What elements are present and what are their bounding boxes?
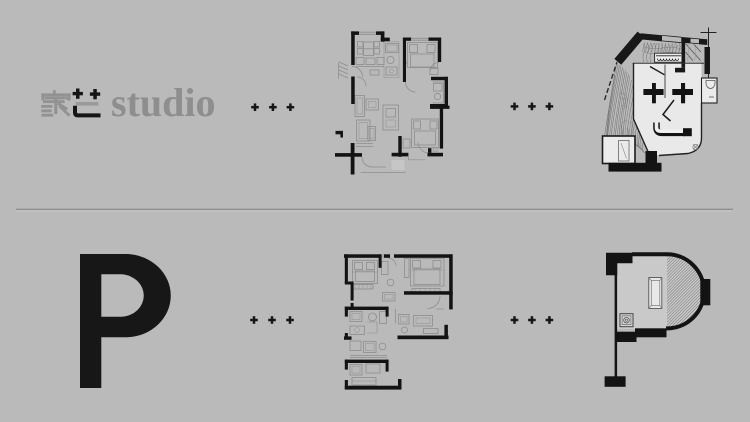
svg-text:studio: studio [111,80,216,125]
